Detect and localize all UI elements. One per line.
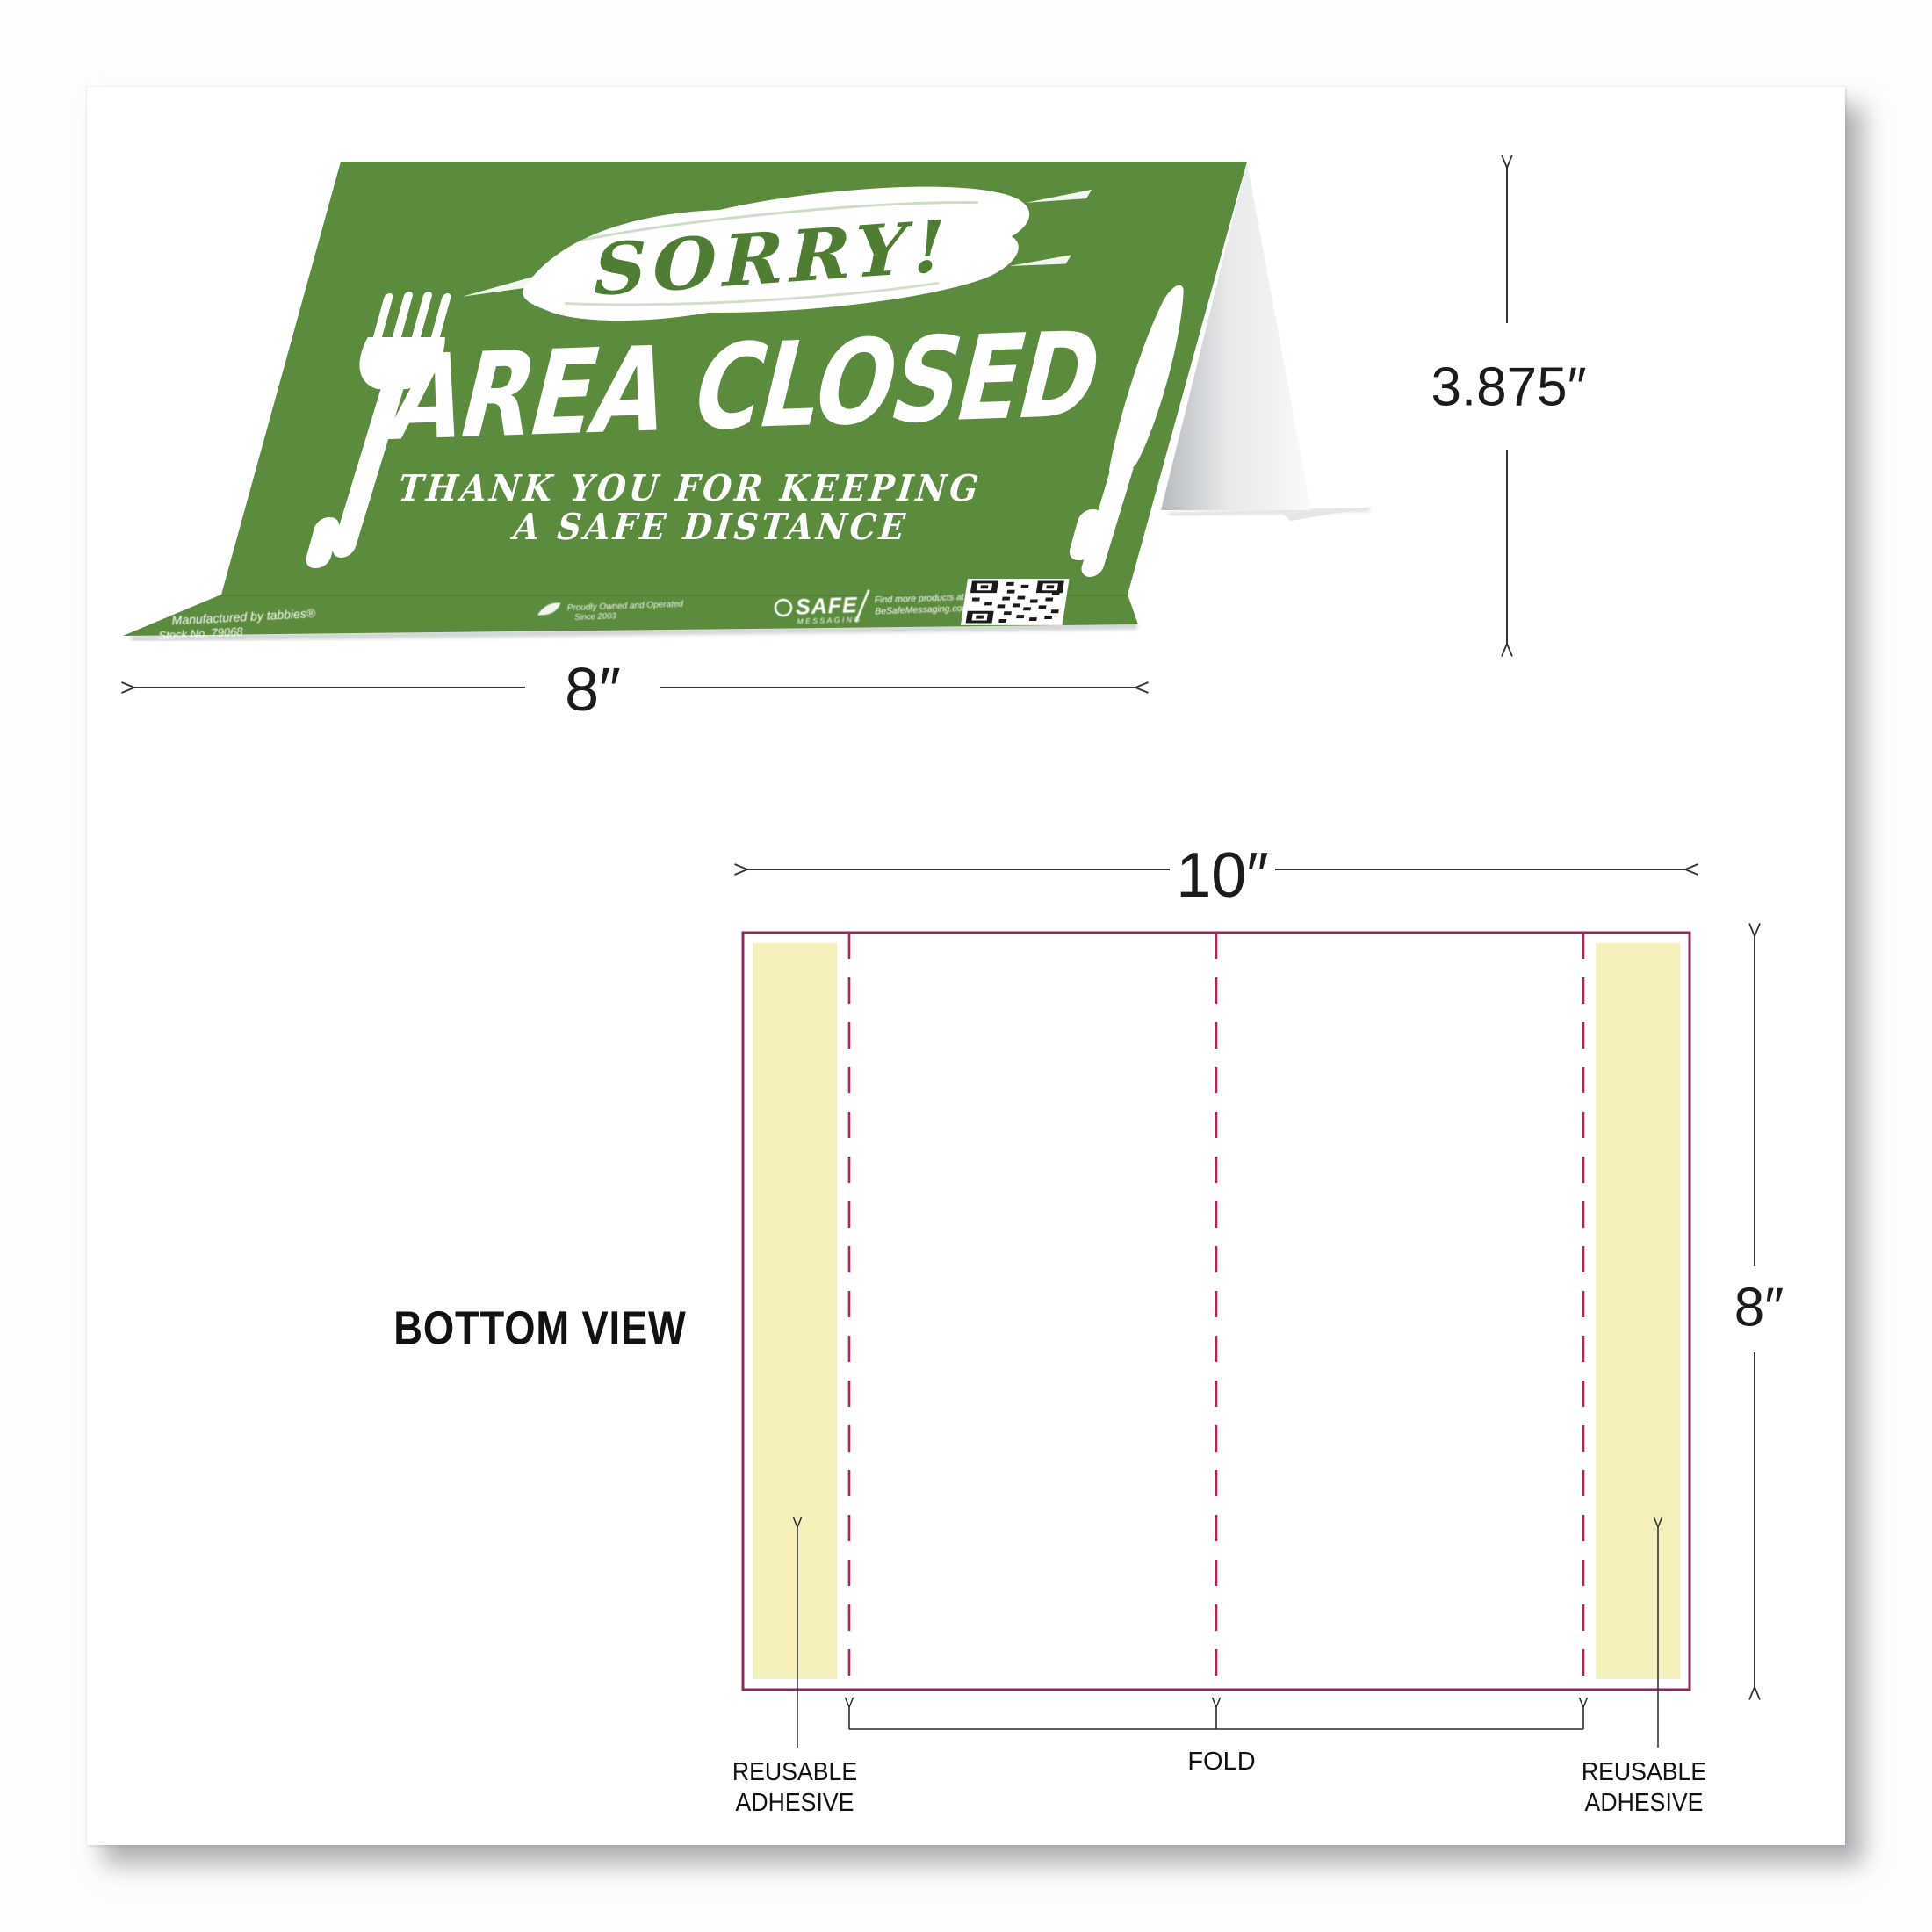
adhesive-strip-left <box>753 943 837 1679</box>
adhesive-left-line2: ADHESIVE <box>736 1788 854 1816</box>
headline-text: AREA CLOSED <box>377 306 1114 467</box>
bottom-height-label: 8″ <box>1734 1278 1784 1338</box>
tent-front-face: SORRY! AREA CLOSED THANK YOU FOR KEEPING… <box>221 162 1247 595</box>
product-illustration: SORRY! AREA CLOSED THANK YOU FOR KEEPING… <box>0 0 1932 1932</box>
subline-2: A SAFE DISTANCE <box>507 506 913 548</box>
bottom-width-label: 10″ <box>1176 840 1269 911</box>
bottom-view-diagram: BOTTOM VIEW 10″ 8″ <box>393 840 1784 1816</box>
adhesive-right-line2: ADHESIVE <box>1585 1788 1704 1816</box>
bottom-height-dimension: 8″ <box>1734 936 1784 1687</box>
adhesive-strip-right <box>1596 943 1680 1679</box>
tent-height-label: 3.875″ <box>1431 357 1586 418</box>
tent-width-label: 8″ <box>565 655 621 724</box>
tent-height-dimension: 3.875″ <box>1431 168 1586 644</box>
adhesive-label-right: REUSABLE ADHESIVE <box>1582 1757 1706 1816</box>
adhesive-right-line1: REUSABLE <box>1582 1757 1706 1785</box>
fold-bracket <box>849 1707 1583 1729</box>
tent-sign: SORRY! AREA CLOSED THANK YOU FOR KEEPING… <box>123 162 1587 724</box>
tent-width-dimension: 8″ <box>134 655 1135 724</box>
bottom-view-title: BOTTOM VIEW <box>393 1301 686 1355</box>
fold-label: FOLD <box>1187 1748 1255 1776</box>
subline-1: THANK YOU FOR KEEPING <box>393 467 987 509</box>
diagram-canvas: SORRY! AREA CLOSED THANK YOU FOR KEEPING… <box>0 0 1932 1932</box>
qr-code <box>961 579 1070 625</box>
adhesive-label-left: REUSABLE ADHESIVE <box>732 1757 857 1816</box>
center-note-2: Since 2003 <box>574 611 617 623</box>
adhesive-left-line1: REUSABLE <box>732 1757 857 1785</box>
bottom-width-dimension: 10″ <box>747 840 1685 911</box>
